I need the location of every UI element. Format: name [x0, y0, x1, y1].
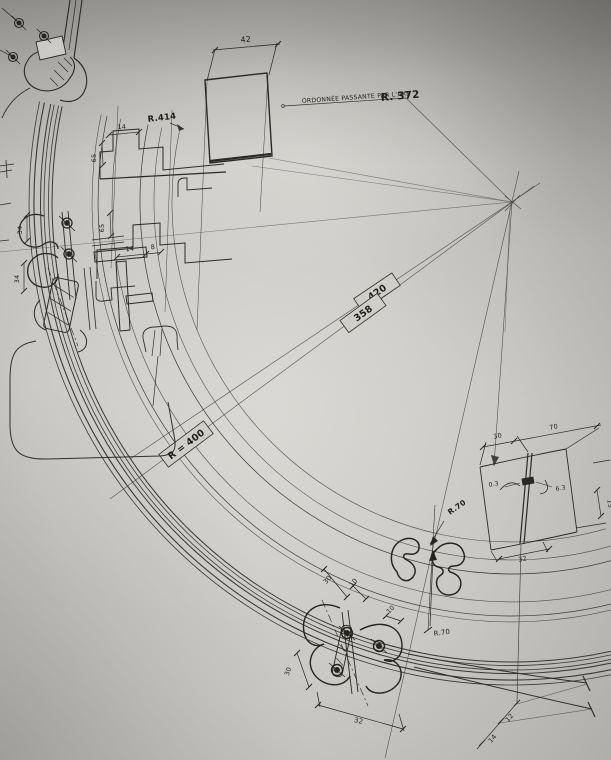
dim-65-a-text: 65 [90, 154, 98, 163]
dim-70-panel-text: 70 [549, 422, 559, 432]
dim-pillar-width: 42 [240, 35, 251, 45]
dim-65-b-text: 65 [98, 224, 106, 233]
dim-8-text: 8 [150, 243, 155, 251]
dim-32-panel-text: 32 [518, 554, 528, 564]
dim-30-panel-text: 30 [493, 431, 503, 441]
dim-34-b-text: 34 [13, 275, 21, 284]
technical-drawing: 42 ORDONNÉE PASSANTE PAR L'AXE R. 372 R.… [0, 0, 611, 760]
dim-14-top-text: 14 [117, 123, 126, 132]
blueprint-sheet: 42 ORDONNÉE PASSANTE PAR L'AXE R. 372 R.… [0, 0, 611, 760]
paper-background [0, 0, 611, 760]
